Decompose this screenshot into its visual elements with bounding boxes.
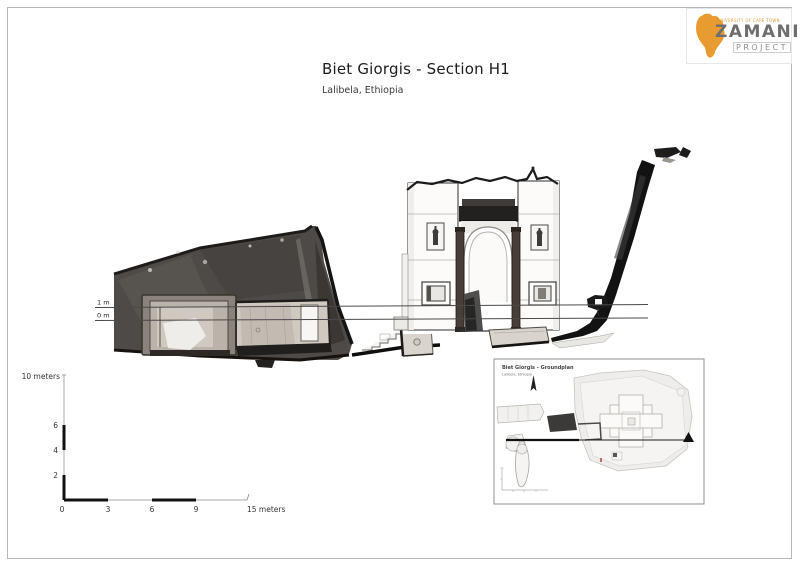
hscale-tick-6: 6 <box>150 505 155 514</box>
datum-label-1m: 1 m <box>97 299 110 307</box>
horizontal-scale: 0 3 6 9 15 meters <box>60 494 286 514</box>
right-pier <box>518 181 559 330</box>
red-marker <box>600 458 602 462</box>
left-pier <box>408 183 458 330</box>
section-drawing: 1 m 0 m 10 meters 6 4 2 0 3 6 9 15 meter… <box>0 0 800 566</box>
lintel-cap <box>462 199 515 206</box>
top-fragment <box>532 167 535 170</box>
vscale-tick-4: 4 <box>53 446 58 455</box>
vscale-tick-2: 2 <box>53 471 58 480</box>
church-facade <box>394 167 563 348</box>
upper-window-left <box>427 223 444 250</box>
inset-subtitle: Lalibela, Ethiopia <box>502 373 532 377</box>
upper-window-right <box>531 225 548 250</box>
datum-label-0m: 0 m <box>97 312 110 320</box>
vertical-scale: 10 meters 6 4 2 <box>22 372 66 500</box>
lower-window-left <box>422 282 450 305</box>
base-plinth <box>489 327 549 347</box>
door-niche <box>142 295 236 356</box>
hscale-tick-0: 0 <box>60 505 65 514</box>
drawing-plate: Biet Giorgis - Section H1 Lalibela, Ethi… <box>0 0 800 566</box>
vscale-top-label: 10 meters <box>22 372 60 381</box>
hscale-tick-3: 3 <box>106 505 111 514</box>
vscale-tick-6: 6 <box>53 421 58 430</box>
stone-wall-block <box>236 300 332 356</box>
lintel <box>459 206 518 221</box>
hscale-end-label: 15 meters <box>247 505 285 514</box>
inset-title: Biet Giorgis - Groundplan <box>502 365 574 371</box>
hscale-tick-9: 9 <box>194 505 199 514</box>
lower-window-right <box>529 282 556 305</box>
inset-map: Biet Giorgis - Groundplan Lalibela, Ethi… <box>494 359 704 504</box>
